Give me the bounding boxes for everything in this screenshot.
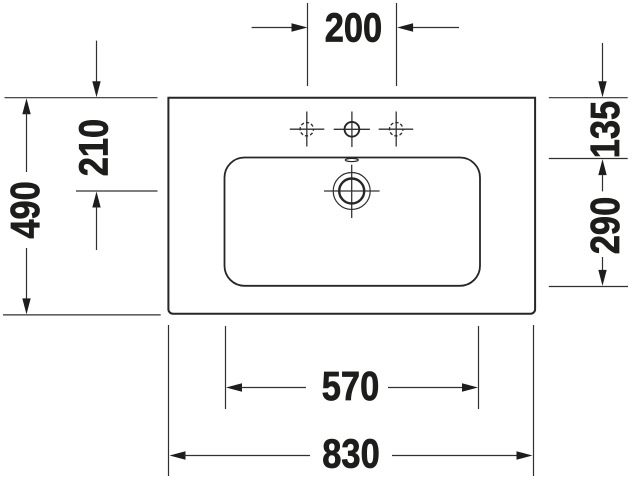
svg-text:490: 490 (3, 181, 48, 238)
svg-text:570: 570 (322, 363, 379, 408)
svg-text:830: 830 (322, 431, 379, 476)
svg-text:135: 135 (583, 101, 628, 158)
svg-text:200: 200 (325, 5, 382, 50)
svg-text:290: 290 (582, 197, 627, 254)
svg-text:210: 210 (71, 119, 116, 176)
